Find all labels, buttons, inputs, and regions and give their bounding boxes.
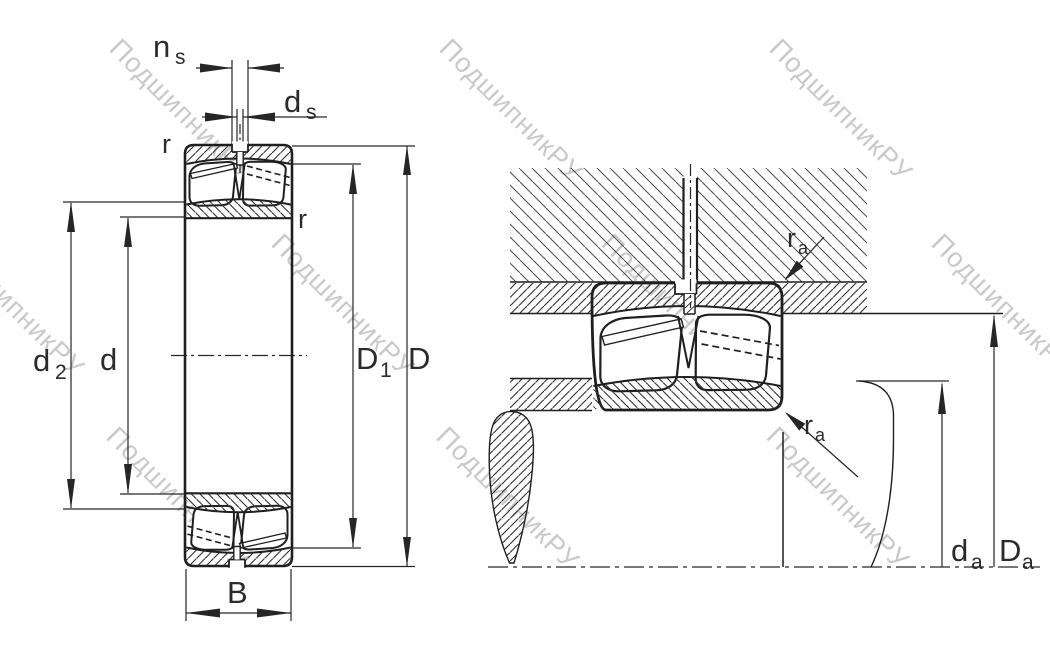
label-D1: D	[356, 341, 378, 376]
label-Da-sub: a	[1022, 551, 1034, 574]
arrowhead-D1-bottom	[349, 518, 357, 548]
label-Da: D	[999, 533, 1021, 568]
label-D1-sub: 1	[380, 359, 392, 382]
label-d2: d	[33, 343, 50, 378]
label-da-sub: a	[971, 551, 983, 574]
right-view-mounted-bearing: r a r a d a D a	[488, 164, 1040, 574]
label-ns: n	[153, 29, 170, 64]
arrowhead-ns-right	[248, 64, 280, 73]
label-ra-bottom: r	[804, 410, 813, 440]
watermark-text: ПодшипникРУ	[764, 33, 918, 187]
watermark-text: ПодшипникРУ	[434, 33, 588, 187]
label-ns-sub: s	[175, 46, 186, 69]
left-bearing-bottom-section	[185, 493, 292, 570]
label-ds-sub: s	[306, 101, 317, 124]
label-ds: d	[284, 84, 301, 119]
lubrication-groove-cutout	[675, 280, 697, 295]
label-B: B	[227, 575, 248, 610]
housing-shoulder-left	[510, 283, 592, 313]
bearing-drawing-canvas: ПодшипникРУ ПодшипникРУ ПодшипникРУ Подш…	[0, 0, 1050, 650]
arrowhead-d-bottom	[124, 464, 132, 494]
label-d2-sub: 2	[55, 361, 67, 384]
arrowhead-D-bottom	[403, 537, 411, 567]
label-da: d	[951, 533, 968, 568]
housing-shoulder-right	[782, 283, 867, 313]
arrowhead-d2-top	[67, 202, 75, 232]
label-r-top-left: r	[162, 129, 171, 159]
arrowhead-d-top	[124, 217, 132, 247]
arrowhead-B-right	[257, 609, 291, 618]
label-D: D	[408, 341, 430, 376]
arrowhead-d2-bottom	[67, 479, 75, 509]
label-r-right: r	[298, 204, 307, 234]
arrowhead-B-left	[186, 609, 220, 618]
watermark-text: ПодшипникРУ	[761, 421, 915, 575]
technical-drawing: ПодшипникРУ ПодшипникРУ ПодшипникРУ Подш…	[0, 0, 1050, 650]
shaft-shoulder-partial-section	[489, 412, 533, 564]
shaft-seat-section	[510, 379, 592, 410]
watermark-text: ПодшипникРУ	[266, 228, 420, 382]
arrowhead-D1-top	[349, 164, 357, 194]
arrowhead-da	[938, 382, 946, 415]
label-ra-bottom-sub: a	[815, 425, 826, 445]
watermark-text: ПодшипникРУ	[926, 228, 1050, 382]
arrowhead-D-top	[403, 146, 411, 176]
arrowhead-ns-left	[200, 64, 232, 73]
label-d: d	[100, 342, 117, 377]
label-ra-top: r	[787, 223, 796, 253]
label-ra-top-sub: a	[798, 238, 809, 258]
